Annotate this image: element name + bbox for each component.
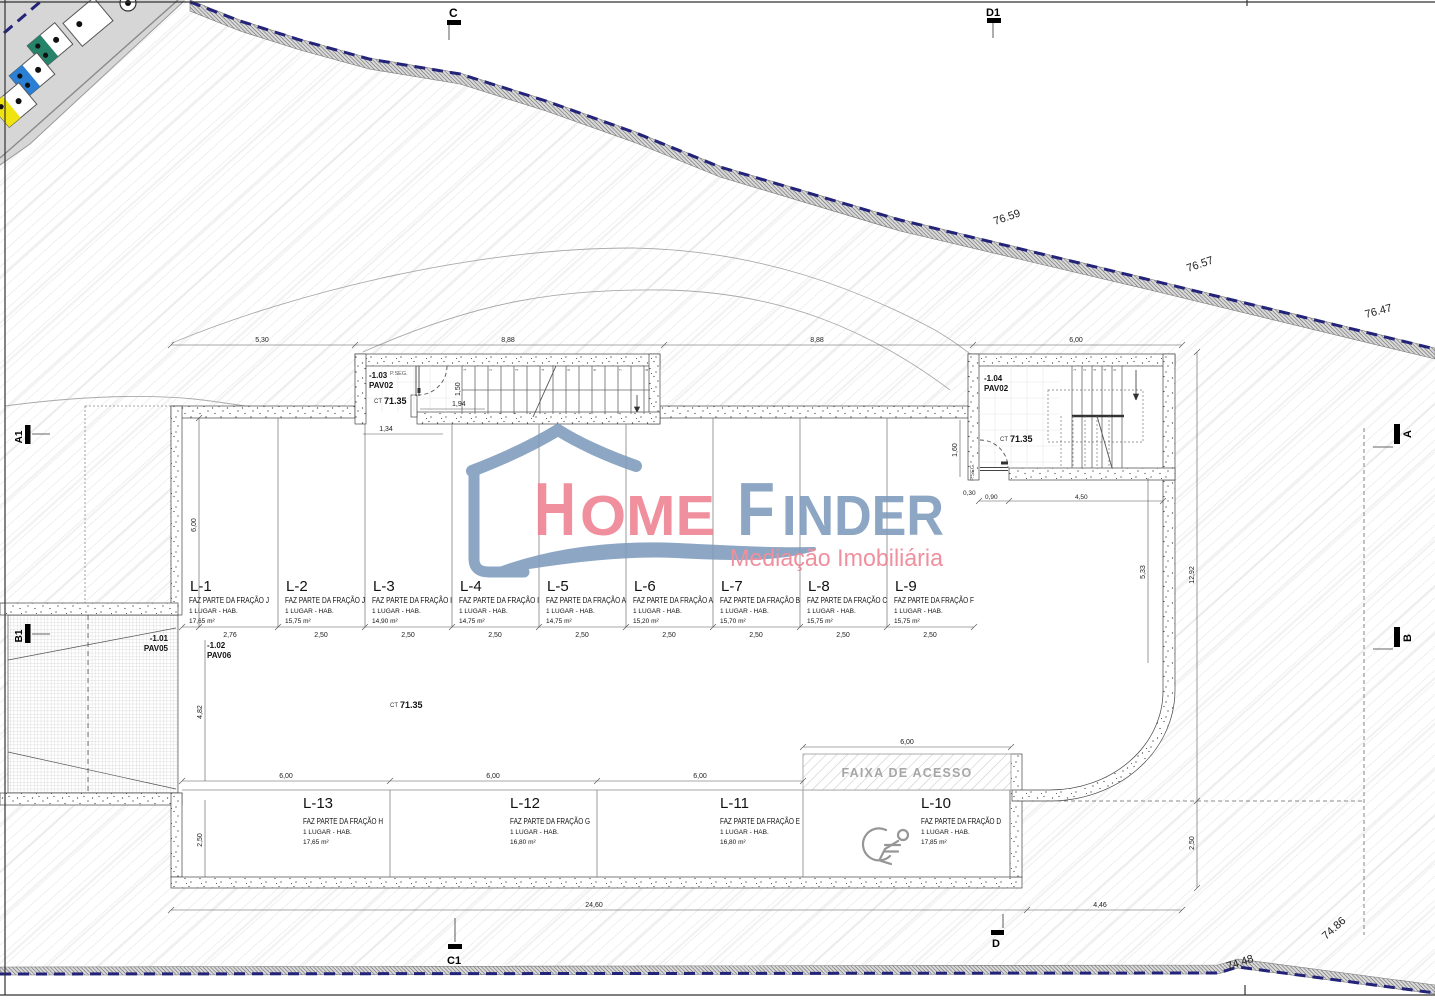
svg-text:1 LUGAR - HAB.: 1 LUGAR - HAB. [894,608,943,615]
svg-text:FAIXA DE ACESSO: FAIXA DE ACESSO [842,766,973,780]
svg-text:P.SEG.: P.SEG. [390,371,408,377]
svg-text:2,50: 2,50 [488,632,502,639]
svg-text:2,50: 2,50 [662,632,676,639]
svg-text:17,65 m²: 17,65 m² [189,618,215,625]
svg-text:L-9: L-9 [895,578,917,595]
svg-text:8,88: 8,88 [501,337,515,344]
svg-text:4,82: 4,82 [197,705,204,719]
svg-text:1,34: 1,34 [379,426,393,433]
svg-text:6,00: 6,00 [279,773,293,780]
svg-text:15,75 m²: 15,75 m² [894,618,920,625]
svg-text:B1: B1 [14,629,25,642]
svg-text:C: C [449,6,458,20]
svg-text:FAZ PARTE DA FRAÇÃO E: FAZ PARTE DA FRAÇÃO E [720,817,800,826]
svg-text:L-13: L-13 [303,795,333,812]
svg-text:FAZ PARTE DA FRAÇÃO A: FAZ PARTE DA FRAÇÃO A [546,596,627,605]
svg-text:1 LUGAR - HAB.: 1 LUGAR - HAB. [720,608,769,615]
svg-text:FAZ PARTE DA FRAÇÃO A: FAZ PARTE DA FRAÇÃO A [633,596,714,605]
svg-text:FAZ PARTE DA FRAÇÃO I: FAZ PARTE DA FRAÇÃO I [372,596,452,605]
svg-text:2,50: 2,50 [575,632,589,639]
svg-text:L-6: L-6 [634,578,656,595]
svg-text:-1.03: -1.03 [369,371,388,380]
svg-text:1 LUGAR - HAB.: 1 LUGAR - HAB. [546,608,595,615]
svg-text:71.35: 71.35 [1010,434,1033,444]
svg-text:C1: C1 [447,955,461,967]
svg-text:2,50: 2,50 [923,632,937,639]
svg-text:15,75 m²: 15,75 m² [285,618,311,625]
svg-text:17,65 m²: 17,65 m² [303,839,329,846]
svg-text:D1: D1 [986,7,1000,19]
svg-text:L-1: L-1 [190,578,212,595]
svg-text:FAZ PARTE DA FRAÇÃO D: FAZ PARTE DA FRAÇÃO D [921,817,1001,826]
svg-text:A1: A1 [14,430,25,443]
svg-text:CT: CT [390,703,398,709]
svg-text:INDER: INDER [782,484,944,548]
svg-text:L-2: L-2 [286,578,308,595]
svg-text:PAV02: PAV02 [984,384,1009,393]
svg-text:16,80 m²: 16,80 m² [510,839,536,846]
svg-text:71.35: 71.35 [400,700,423,710]
svg-text:Mediação Imobiliária: Mediação Imobiliária [730,545,944,572]
svg-text:6,00: 6,00 [1069,337,1083,344]
svg-text:1 LUGAR - HAB.: 1 LUGAR - HAB. [189,608,238,615]
svg-text:17,85 m²: 17,85 m² [921,839,947,846]
svg-text:71.35: 71.35 [384,396,407,406]
svg-text:1,60: 1,60 [952,443,959,457]
svg-text:1 LUGAR - HAB.: 1 LUGAR - HAB. [372,608,421,615]
svg-text:16,80 m²: 16,80 m² [720,839,746,846]
svg-text:1 LUGAR - HAB.: 1 LUGAR - HAB. [720,829,769,836]
svg-text:L-11: L-11 [720,795,749,812]
svg-text:F: F [737,467,775,551]
svg-text:-1.02: -1.02 [207,641,226,650]
svg-text:1,94: 1,94 [452,401,466,408]
svg-text:1,50: 1,50 [455,382,462,396]
svg-text:1 LUGAR - HAB.: 1 LUGAR - HAB. [807,608,856,615]
svg-text:2,50: 2,50 [1189,836,1196,850]
svg-text:2,50: 2,50 [197,833,204,847]
svg-text:-1.04: -1.04 [984,374,1003,383]
svg-text:0,90: 0,90 [985,494,998,501]
svg-text:FAZ PARTE DA FRAÇÃO F: FAZ PARTE DA FRAÇÃO F [894,596,974,605]
svg-text:14,75 m²: 14,75 m² [546,618,572,625]
svg-text:1 LUGAR - HAB.: 1 LUGAR - HAB. [303,829,352,836]
svg-text:FAZ PARTE DA FRAÇÃO J: FAZ PARTE DA FRAÇÃO J [285,596,365,605]
svg-text:L-10: L-10 [921,795,951,812]
svg-text:4,50: 4,50 [1075,494,1088,501]
svg-text:6,00: 6,00 [486,773,500,780]
svg-text:0,30: 0,30 [963,490,976,497]
svg-text:2,50: 2,50 [836,632,850,639]
svg-text:6,00: 6,00 [693,773,707,780]
svg-text:OME: OME [580,484,715,548]
svg-text:2,50: 2,50 [749,632,763,639]
svg-text:1 LUGAR - HAB.: 1 LUGAR - HAB. [285,608,334,615]
svg-text:24,60: 24,60 [585,902,603,909]
svg-text:PAV05: PAV05 [144,644,169,653]
svg-text:CT: CT [1000,437,1008,443]
svg-text:5,30: 5,30 [255,337,269,344]
svg-text:FAZ PARTE DA FRAÇÃO H: FAZ PARTE DA FRAÇÃO H [303,817,383,826]
svg-text:14,75 m²: 14,75 m² [459,618,485,625]
svg-text:-1.01: -1.01 [150,634,169,643]
svg-text:L-8: L-8 [808,578,830,595]
svg-text:4,46: 4,46 [1093,902,1107,909]
svg-text:L-3: L-3 [373,578,395,595]
svg-text:L-7: L-7 [721,578,743,595]
svg-text:1 LUGAR - HAB.: 1 LUGAR - HAB. [510,829,559,836]
svg-text:FAZ PARTE DA FRAÇÃO G: FAZ PARTE DA FRAÇÃO G [510,817,590,826]
svg-text:15,20 m²: 15,20 m² [633,618,659,625]
svg-text:H: H [534,467,576,551]
svg-text:FAZ PARTE DA FRAÇÃO I: FAZ PARTE DA FRAÇÃO I [459,596,539,605]
svg-text:1 LUGAR - HAB.: 1 LUGAR - HAB. [633,608,682,615]
svg-text:2,50: 2,50 [314,632,328,639]
svg-text:A: A [1402,430,1414,438]
svg-text:1 LUGAR - HAB.: 1 LUGAR - HAB. [921,829,970,836]
svg-text:12,92: 12,92 [1189,566,1196,584]
svg-text:PAV02: PAV02 [369,381,394,390]
svg-text:CT: CT [374,399,382,405]
svg-text:FAZ PARTE DA FRAÇÃO C: FAZ PARTE DA FRAÇÃO C [807,596,887,605]
svg-text:L-4: L-4 [460,578,482,595]
svg-text:PAV06: PAV06 [207,651,232,660]
svg-text:L-5: L-5 [547,578,569,595]
svg-text:15,75 m²: 15,75 m² [807,618,833,625]
svg-text:FAZ PARTE DA FRAÇÃO J: FAZ PARTE DA FRAÇÃO J [189,596,269,605]
svg-text:B: B [1402,634,1414,642]
svg-text:6,00: 6,00 [191,518,198,532]
svg-text:2,50: 2,50 [401,632,415,639]
svg-text:D: D [992,938,1000,950]
svg-text:8,88: 8,88 [810,337,824,344]
svg-text:FAZ PARTE DA FRAÇÃO B: FAZ PARTE DA FRAÇÃO B [720,596,800,605]
svg-text:14,90 m²: 14,90 m² [372,618,398,625]
svg-text:1 LUGAR - HAB.: 1 LUGAR - HAB. [459,608,508,615]
svg-text:2,76: 2,76 [223,632,237,639]
svg-text:P.SEG.: P.SEG. [970,463,976,481]
svg-text:L-12: L-12 [510,795,540,812]
svg-text:5,33: 5,33 [1140,565,1147,579]
svg-text:15,70 m²: 15,70 m² [720,618,746,625]
svg-text:6,00: 6,00 [900,739,914,746]
